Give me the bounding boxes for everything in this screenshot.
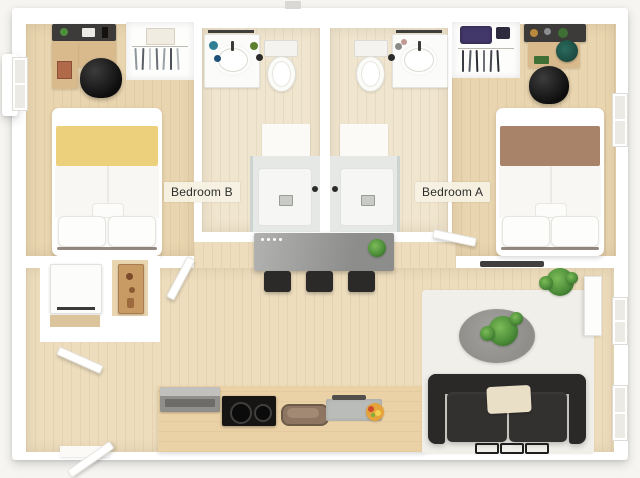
closet-a-rail [458, 48, 514, 49]
burner-2 [254, 404, 272, 422]
vanity-b [204, 34, 260, 88]
bed-b-pillow-right [108, 216, 156, 247]
shower-a-drain [361, 195, 375, 206]
toilet-a-tank [354, 40, 388, 57]
kitchen-faucet [332, 395, 366, 400]
storage-box [496, 27, 510, 39]
bar-stool-1 [264, 271, 291, 292]
closet-floor-strip [50, 315, 100, 327]
bed-b-runner [56, 126, 158, 166]
sofa-arm-right [569, 374, 586, 444]
shower-a [330, 156, 400, 232]
desk-a-book [534, 56, 549, 64]
refrigerator [50, 264, 102, 314]
window-living-2 [613, 386, 627, 440]
bed-b-headboard [57, 247, 157, 250]
window-living-1 [613, 298, 627, 344]
sofa-arm-left [428, 374, 445, 444]
bed-a-pillow-right [551, 216, 599, 247]
sofa [428, 374, 586, 444]
microwave [160, 387, 220, 412]
pantry-item-2 [129, 287, 135, 293]
bedroom-a-label: Bedroom A [415, 182, 490, 202]
cooktop [222, 396, 276, 426]
shower-a-handle [332, 186, 338, 192]
shower-a-tray [340, 168, 394, 226]
plant-living-1 [546, 268, 574, 296]
burner-1 [230, 402, 252, 424]
bed-b-pillow-left [58, 216, 106, 247]
refrigerator-base [57, 307, 95, 310]
kitchen-island [254, 233, 394, 271]
bar-stool-3 [348, 271, 375, 292]
tall-cabinet [584, 276, 602, 336]
desk-paper [82, 28, 95, 37]
plant-coffee-table [488, 316, 518, 346]
wall-notch [285, 1, 301, 9]
folded-clothes [460, 26, 492, 44]
floor-plan: Bedroom B Bedroom A [0, 0, 640, 474]
desk-photo [57, 61, 72, 79]
shower-b-tray [258, 168, 312, 226]
soap-dish [209, 41, 218, 50]
closet-rail [132, 46, 188, 47]
toilet-a-bowl [356, 56, 385, 92]
small-plant [250, 42, 258, 50]
desk-b-return [52, 41, 78, 89]
shower-b-handle [312, 186, 318, 192]
window-bedroom-b [13, 58, 27, 110]
bath-mat-b [262, 124, 310, 158]
toilet-b-tank [264, 40, 298, 57]
toilet-b-bowl [267, 56, 296, 92]
toilet-paper-holder-a [388, 54, 395, 61]
toiletries-2 [401, 39, 407, 45]
media-console [480, 261, 544, 267]
bed-b [52, 108, 162, 256]
shower-b-glass [250, 156, 253, 232]
desk-shelf-b [52, 24, 116, 41]
mirror-b [208, 30, 254, 33]
toilet-paper-holder [256, 54, 263, 61]
cup [214, 55, 221, 62]
vanity-a [392, 34, 448, 88]
shower-a-glass [397, 156, 400, 232]
closet-b [126, 22, 194, 80]
desk-a-item-1 [530, 29, 538, 37]
bed-a-pillow-left [502, 216, 550, 247]
bed-a-runner [500, 126, 600, 166]
shower-b-drain [279, 195, 293, 206]
bed-a-headboard [501, 247, 599, 250]
closet-a [452, 22, 520, 78]
pantry-item-1 [126, 273, 133, 280]
floor-vent-2 [500, 443, 524, 454]
shower-b [250, 156, 320, 232]
desk-shelf-a [524, 24, 586, 42]
mirror-a [396, 30, 442, 33]
fruit-bowl [366, 403, 384, 421]
bed-a [496, 108, 604, 256]
floor-vent-3 [525, 443, 549, 454]
desk-a-item-2 [544, 28, 551, 35]
desk-chair-a [529, 66, 569, 104]
floor-vent-1 [475, 443, 499, 454]
faucet-b [231, 41, 234, 51]
bath-mat-a [340, 124, 388, 158]
faucet-a [418, 41, 421, 51]
desk-plant-icon [60, 28, 68, 36]
island-plant [368, 239, 386, 257]
closet-organizer-box [146, 28, 175, 45]
desk-books [102, 27, 108, 38]
seat-cushion [556, 40, 578, 62]
desk-chair-b [80, 58, 122, 98]
cutting-board [281, 404, 329, 426]
throw-pillow [486, 385, 531, 414]
pantry-bottle [127, 298, 134, 308]
bedroom-b-label: Bedroom B [164, 182, 240, 202]
desk-a-plant [558, 28, 568, 38]
pantry-shelves [118, 264, 144, 314]
window-bedroom-a [613, 94, 627, 146]
bar-stool-2 [306, 271, 333, 292]
